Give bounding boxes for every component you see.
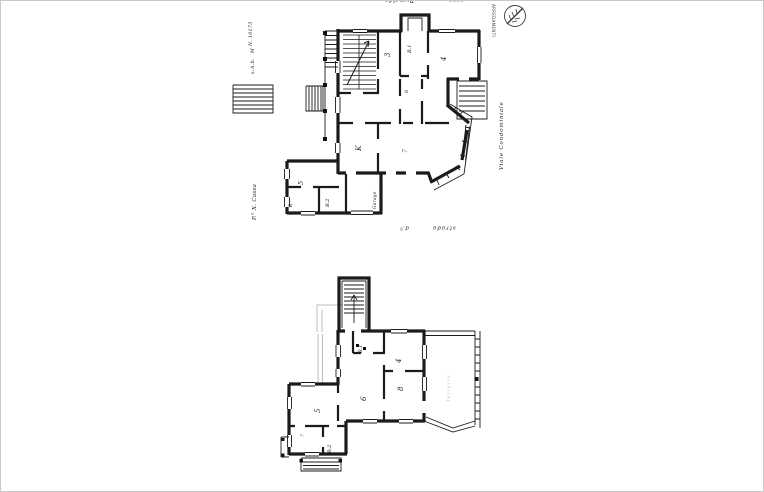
lower-room-label-6: 6: [361, 397, 368, 401]
floor-plan-drawing: [1, 1, 764, 492]
annotation-bottom-street: strada: [432, 224, 456, 230]
annotation-m: M: [252, 48, 257, 53]
upper-room-label-3: 3: [385, 53, 392, 57]
annotation-bottom-small: d.ª: [400, 224, 409, 230]
lower-interior-walls: [289, 331, 425, 454]
annotation-top-right: casa: [449, 0, 464, 2]
annotation-drawing-number: N. 10173: [250, 21, 255, 46]
upper-stair-arrow: [347, 41, 369, 85]
annotation-top-left: Rumalda: [385, 0, 414, 2]
lower-room-label-b2: B.2: [328, 445, 333, 453]
lower-windows: [288, 330, 427, 457]
annotation-terrace: Terrazza: [448, 374, 453, 402]
upper-balconies-terraces: [233, 31, 487, 190]
scanned-floorplan-sheet: ARREDAMENTI Rumalda casa N. 10173 M s.A.…: [0, 0, 764, 492]
lower-pilasters-fixtures: [282, 344, 479, 463]
upper-room-label-b1: B.1: [408, 45, 413, 53]
annotation-scale-note: s.A.b.: [251, 58, 256, 74]
stamp-text: ARREDAMENTI: [491, 4, 495, 37]
upper-exterior-walls: [287, 15, 480, 214]
upper-windows-and-detail: [285, 18, 482, 215]
feather-barbs: [509, 9, 520, 22]
lower-room-label-b1: B.1: [359, 345, 364, 353]
lower-room-label-8: 8: [398, 387, 405, 391]
upper-room-label-5: 5: [298, 181, 305, 185]
upper-stair-treads: [343, 35, 376, 89]
lower-stair-treads: [342, 281, 366, 328]
upper-room-label-b2: B.2: [326, 199, 331, 207]
annotation-owner: P.° X. Cassa: [253, 184, 259, 220]
upper-room-label-7: 7: [403, 149, 409, 153]
architect-stamp-emblem: [505, 6, 526, 27]
annotation-street-right: Viale Condominiale: [500, 101, 506, 170]
lower-room-label-5: 5: [315, 409, 322, 413]
upper-room-label-4: 4: [441, 57, 448, 61]
upper-floor-plan: [233, 15, 487, 215]
annotation-garage: Garage: [374, 191, 378, 209]
lower-room-label-7: 7: [301, 434, 306, 437]
upper-room-label-k: K: [355, 145, 363, 151]
upper-room-label-b: B: [290, 204, 295, 207]
upper-room-label-6: 6: [405, 90, 410, 93]
lower-room-label-4: 4: [396, 359, 403, 363]
